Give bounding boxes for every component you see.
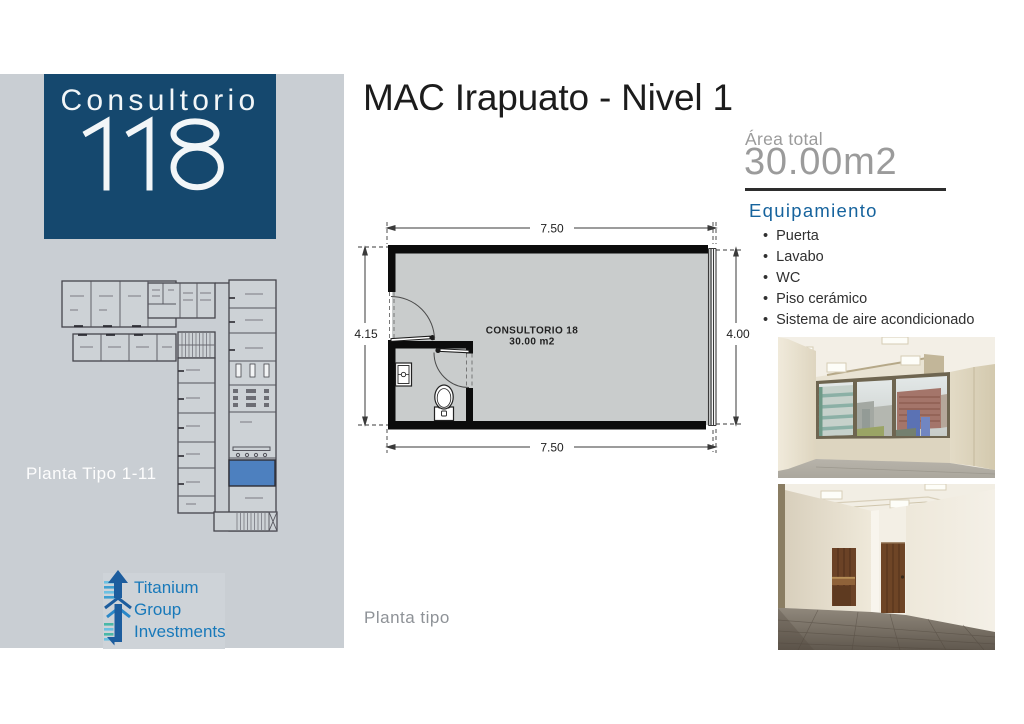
svg-text:4.00: 4.00 (726, 327, 750, 341)
svg-text:7.50: 7.50 (540, 222, 564, 236)
svg-text:4.15: 4.15 (354, 327, 378, 341)
svg-text:7.50: 7.50 (540, 441, 564, 455)
svg-text:CONSULTORIO 18: CONSULTORIO 18 (486, 326, 579, 337)
svg-text:30.00 m2: 30.00 m2 (509, 337, 554, 348)
